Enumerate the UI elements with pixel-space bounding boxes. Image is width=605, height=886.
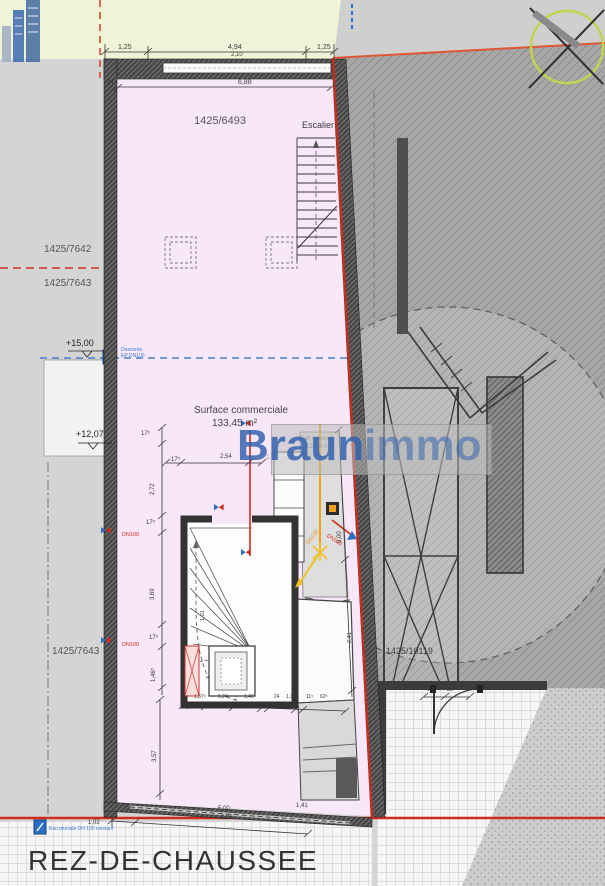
dim-inner-width: 6,88 <box>238 79 252 86</box>
dim-top-right: 1,25 <box>317 44 331 51</box>
level-upper: +15,00 <box>66 339 94 348</box>
dim-chain-7: 11⁵ <box>306 695 313 700</box>
descente-label-2: EP DN100 <box>121 354 145 359</box>
parcel-yellow-strip <box>0 0 341 59</box>
dim-bottom-141: 1,41 <box>296 803 308 809</box>
watermark-text-immo: immo <box>364 421 481 470</box>
dim-top-left: 1,25 <box>118 44 132 51</box>
plan-title: REZ-DE-CHAUSSEE <box>28 845 318 877</box>
surface-label: Surface commerciale <box>194 406 288 416</box>
dim-241: 2,41 <box>348 632 354 643</box>
watermark-text: Braunimmo <box>237 421 481 471</box>
dn100-left-1: DN100 <box>122 533 139 539</box>
parcel-number-left-upper: 1425/7642 <box>44 245 91 255</box>
dim-wall-thickness: 34 <box>107 80 114 86</box>
dim-bottom-500: 5,00 <box>218 806 230 812</box>
floor-plan-drawing: 1,25 4,94 2,10 1,25 34 6,88 1425/6493 Es… <box>0 0 605 886</box>
dim-door-2: 25⁵ <box>447 688 455 694</box>
dim-door-1: 1,6 <box>427 688 435 694</box>
dim-chain-6: 1,37⁵ <box>286 695 298 700</box>
parcel-number-right: 1425/10119 <box>386 647 433 656</box>
dim-1465: 1,46⁵ <box>151 668 157 682</box>
parcel-number-left-mid: 1425/7643 <box>44 279 91 289</box>
dim-chain-1: 11⁵ <box>181 695 188 700</box>
dim-chain-8: 62⁵ <box>320 695 328 700</box>
dim-175-b: 17⁵ <box>171 457 180 463</box>
dim-175-a: 17⁵ <box>141 431 150 437</box>
watermark-buildings-icon <box>0 0 48 64</box>
rainwater-existing-label: Eau pluviale DN 100 existant <box>49 827 113 832</box>
dim-chain-4: 1,40 <box>244 695 254 700</box>
dim-101: 1,01 <box>201 610 207 621</box>
dim-175-e: 17⁵ <box>149 635 158 641</box>
parcel-number-left-lower: 1425/7643 <box>52 647 99 657</box>
dim-175-d: 17⁵ <box>146 520 155 526</box>
dim-top-window: 2,10 <box>231 52 243 58</box>
dim-chain-2: 1,37⁵ <box>194 695 206 700</box>
rainwater-marker <box>34 820 46 834</box>
parcel-number-main: 1425/6493 <box>194 116 246 127</box>
dim-369: 3,69 <box>150 588 156 600</box>
dim-chain-3: 1,24 <box>218 695 228 700</box>
stair-label: Escalier <box>302 121 334 130</box>
dim-272: 2,72 <box>150 483 156 495</box>
dim-top-mid: 4,94 <box>228 44 242 51</box>
dim-chain-5: 24 <box>274 695 280 700</box>
watermark-text-braun: Braun <box>237 421 364 470</box>
dim-357: 3,57 <box>152 750 158 762</box>
level-lower: +12,07 <box>76 430 104 439</box>
dim-bottom-220: 2,20 <box>221 815 233 821</box>
dim-mid: 2,54 <box>220 454 232 460</box>
dn100-left-2: DN100 <box>122 643 139 649</box>
room-lower-right <box>297 599 354 703</box>
